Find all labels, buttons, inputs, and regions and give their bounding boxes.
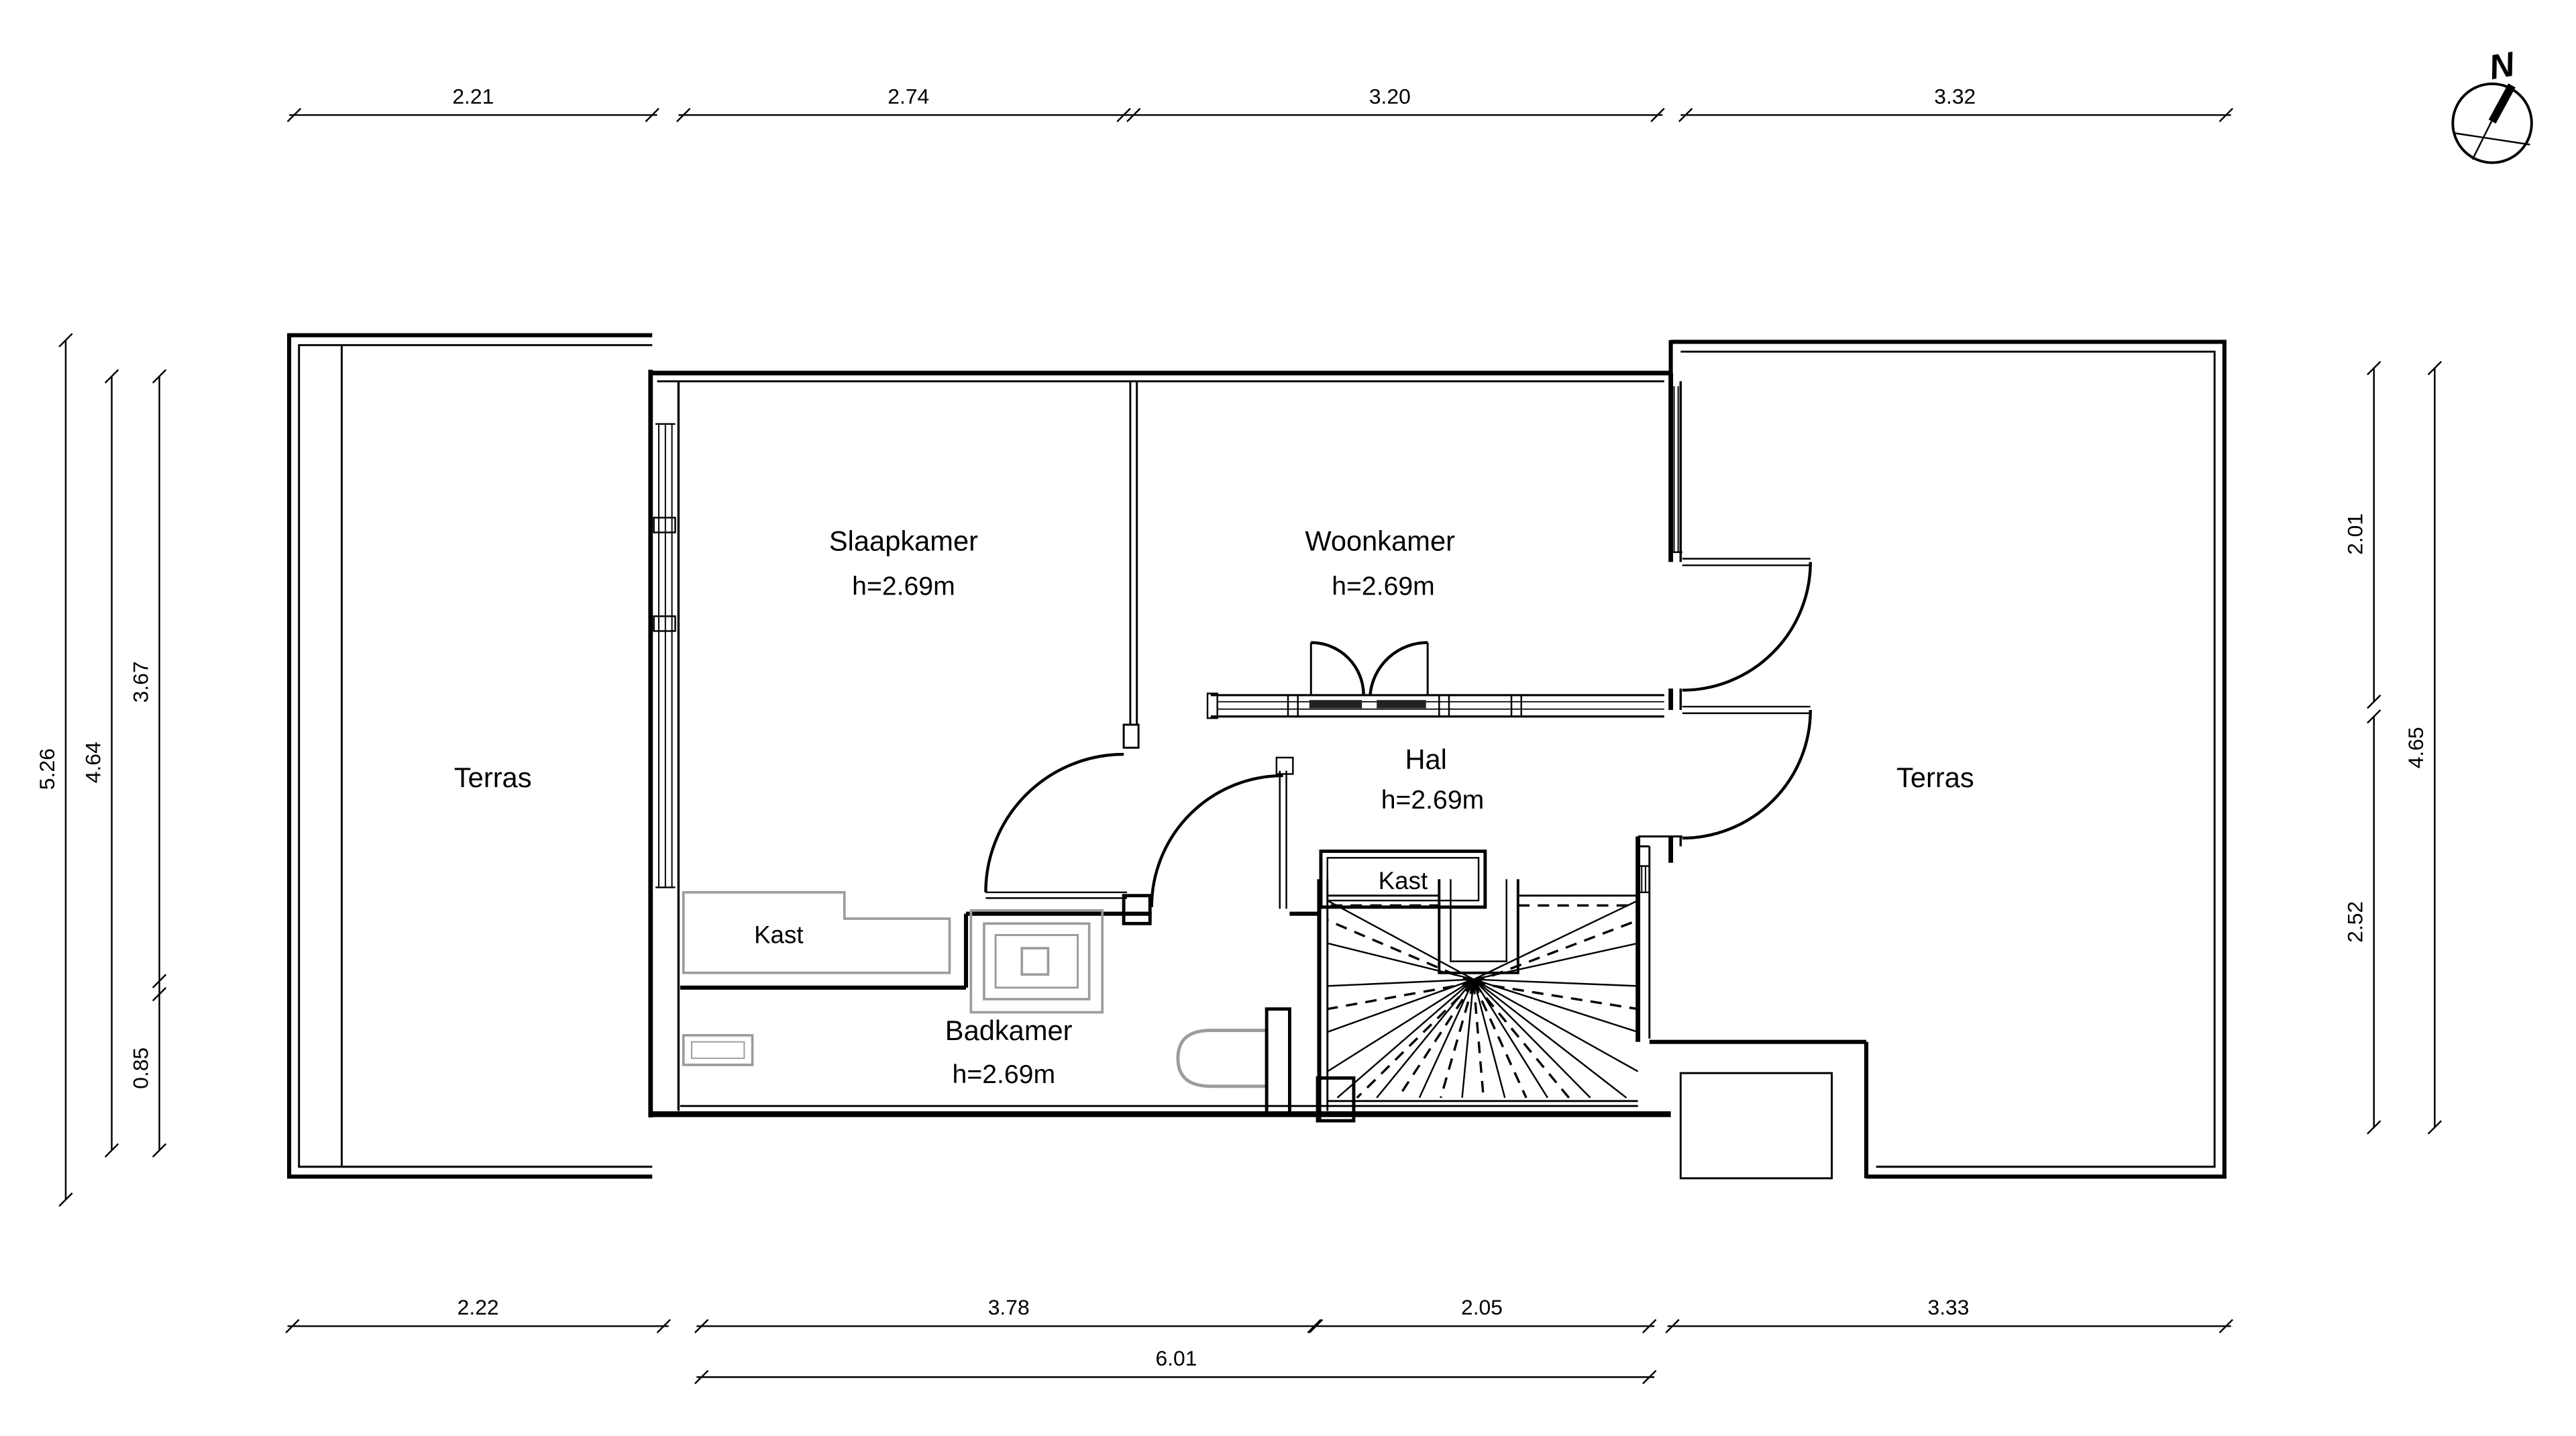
dim-left-mid: 4.64 xyxy=(80,741,105,783)
room-label-badkamer: Badkamer xyxy=(945,1015,1073,1046)
door-sill xyxy=(1309,700,1362,708)
room-height-woonkamer: h=2.69m xyxy=(1332,572,1435,601)
glazed-partition xyxy=(1207,693,1664,718)
floorplan-page: Slaapkamer h=2.69m Woonkamer h=2.69m Hal… xyxy=(0,0,2576,1435)
room-label-slaapkamer: Slaapkamer xyxy=(829,525,978,556)
left-facade-window-icon xyxy=(654,424,676,888)
dim-top-1: 2.21 xyxy=(452,84,494,108)
floorplan-drawing: Slaapkamer h=2.69m Woonkamer h=2.69m Hal… xyxy=(0,0,2576,1435)
north-label: N xyxy=(2486,44,2518,87)
room-label-hal: Hal xyxy=(1405,743,1446,775)
door-sill xyxy=(1377,700,1426,708)
french-double-door-icon xyxy=(1311,643,1428,695)
dim-top-3: 3.20 xyxy=(1369,84,1411,108)
dim-right-lower: 2.52 xyxy=(2343,901,2367,943)
room-label-woonkamer: Woonkamer xyxy=(1305,525,1455,556)
room-label-kast-hal: Kast xyxy=(1379,867,1428,894)
dim-top-4: 3.32 xyxy=(1934,84,1976,108)
dim-left-lower: 0.85 xyxy=(128,1047,152,1089)
unit-walls xyxy=(651,370,1866,1178)
room-label-terras-right: Terras xyxy=(1896,762,1974,793)
badkamer-door-icon xyxy=(1152,758,1293,909)
dim-right-outer: 4.65 xyxy=(2404,727,2428,768)
terrace-door-lower-icon xyxy=(1682,707,1811,838)
left-terrace-walls xyxy=(289,336,652,1177)
room-height-hal: h=2.69m xyxy=(1381,786,1485,815)
washbasin-icon xyxy=(684,1035,753,1065)
terrace-door-upper-icon xyxy=(1682,559,1811,690)
dim-bottom-2: 3.78 xyxy=(988,1295,1030,1319)
dim-bottom-3: 2.05 xyxy=(1461,1295,1503,1319)
room-labels: Slaapkamer h=2.69m Woonkamer h=2.69m Hal… xyxy=(454,525,1974,1088)
dim-right-upper: 2.01 xyxy=(2343,513,2367,555)
north-arrow-icon: N xyxy=(2453,44,2532,162)
winder-staircase xyxy=(1320,879,1638,1121)
shower-icon xyxy=(971,911,1102,1013)
kast-slaapkamer-outline xyxy=(684,892,950,973)
dim-top-2: 2.74 xyxy=(888,84,929,108)
dim-left-outer: 5.26 xyxy=(35,748,59,790)
toilet-icon xyxy=(1178,1009,1290,1115)
dim-bottom-total: 6.01 xyxy=(1155,1346,1197,1370)
right-terrace-walls xyxy=(1671,340,2224,1177)
room-label-terras-left: Terras xyxy=(454,762,532,793)
room-label-kast-slaapkamer: Kast xyxy=(754,921,803,949)
dim-left-upper: 3.67 xyxy=(128,661,152,703)
dimension-lines: 2.21 2.74 3.20 3.32 2.22 3.78 2.05 3.33 … xyxy=(35,84,2441,1384)
room-height-slaapkamer: h=2.69m xyxy=(852,572,955,601)
slaapkamer-door-icon xyxy=(985,754,1150,923)
room-height-badkamer: h=2.69m xyxy=(953,1060,1056,1089)
dim-bottom-4: 3.33 xyxy=(1928,1295,1970,1319)
dim-bottom-1: 2.22 xyxy=(458,1295,499,1319)
